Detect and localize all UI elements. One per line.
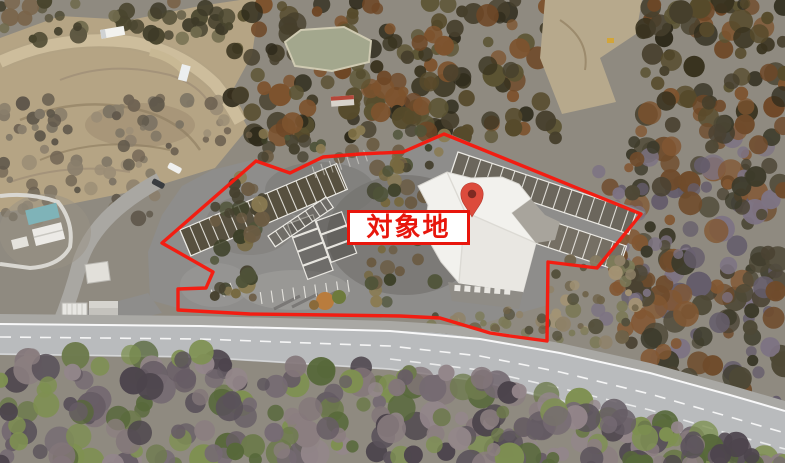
screenshot-root: 対象地 <box>0 0 785 463</box>
site-label-text: 対象地 <box>366 215 450 241</box>
small-hut <box>331 95 355 107</box>
site-label: 対象地 <box>347 210 470 245</box>
pond <box>285 27 371 71</box>
